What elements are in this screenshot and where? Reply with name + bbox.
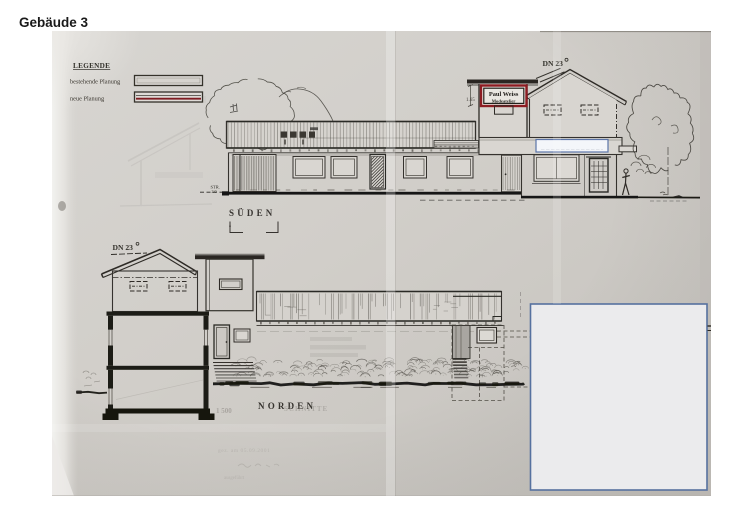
svg-text:bestehende Planung: bestehende Planung: [70, 79, 121, 86]
svg-text:2.0: 2.0: [212, 189, 217, 194]
svg-text:1.65: 1.65: [466, 98, 475, 103]
svg-text:ausgeführt: ausgeführt: [224, 476, 245, 481]
svg-text:LEGENDE: LEGENDE: [73, 62, 110, 70]
svg-text:1 500: 1 500: [216, 407, 232, 415]
svg-text:SCHNITTE: SCHNITTE: [284, 405, 328, 413]
svg-text:Paul Weiss: Paul Weiss: [489, 91, 519, 98]
svg-text:Modeatelier: Modeatelier: [492, 98, 516, 103]
svg-text:neue Planung: neue Planung: [70, 96, 105, 103]
svg-text:DN 23: DN 23: [113, 243, 134, 252]
svg-text:gez. am 05.09.2001: gez. am 05.09.2001: [218, 448, 270, 454]
svg-text:SÜDEN: SÜDEN: [229, 208, 276, 218]
